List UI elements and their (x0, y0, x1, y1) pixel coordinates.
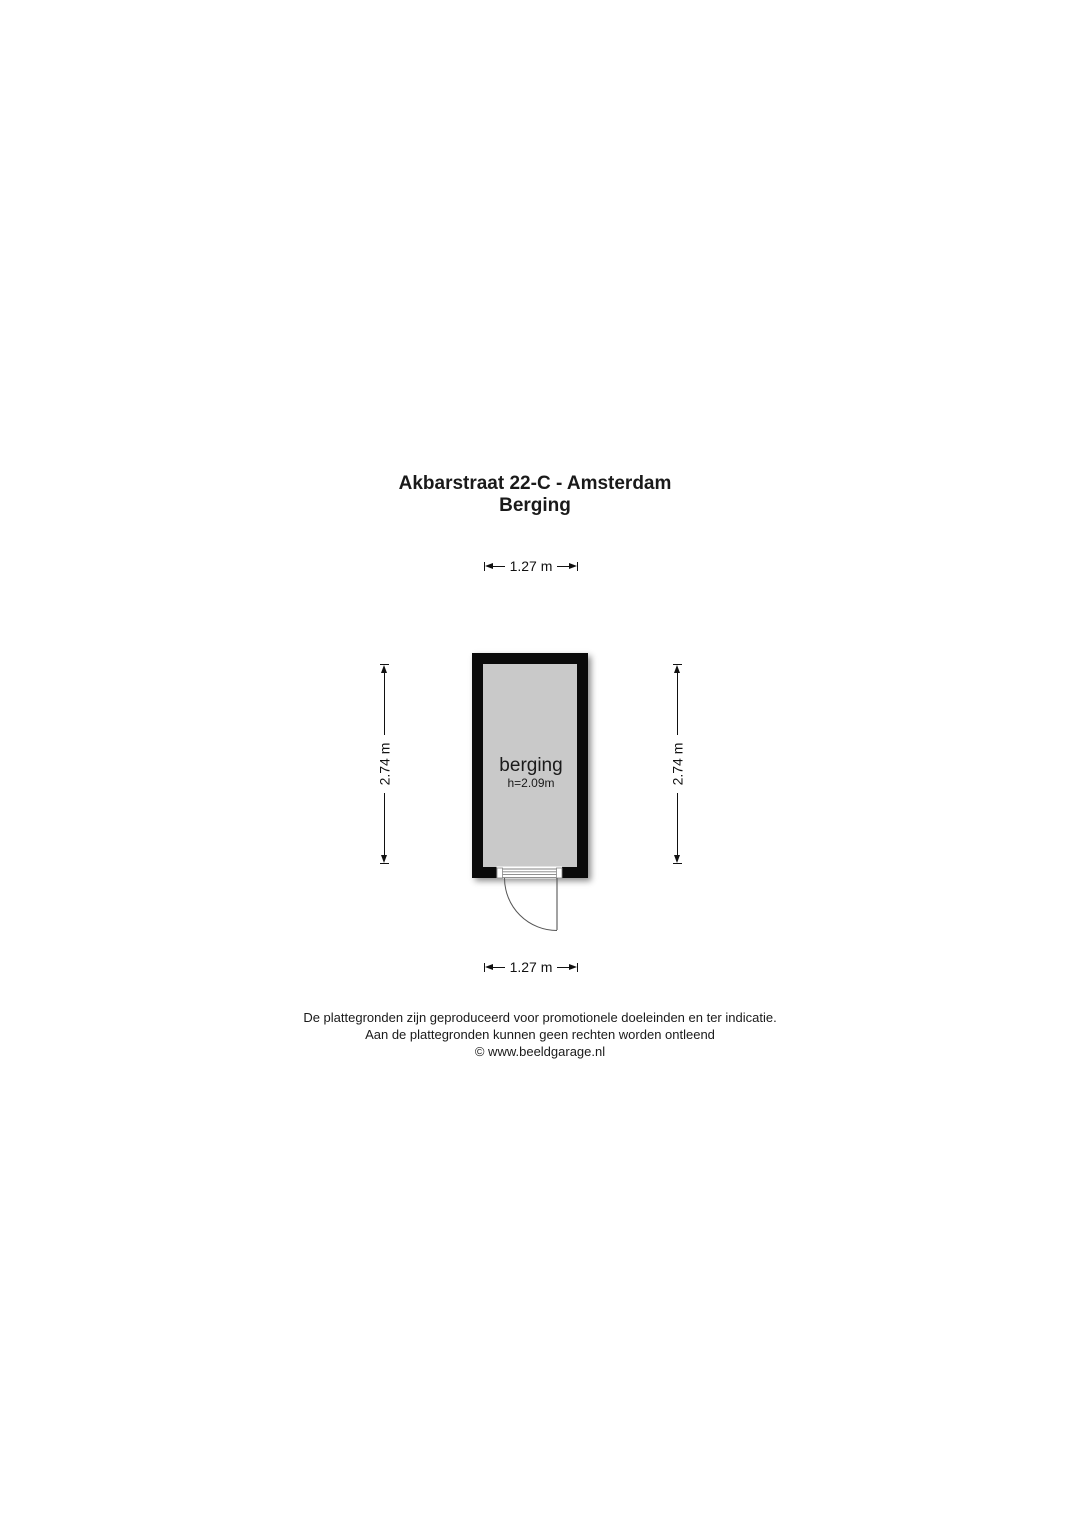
dimension-line (677, 673, 678, 735)
dimension-line (557, 566, 569, 567)
arrow-right-icon (569, 563, 577, 569)
dimension-width-bottom: 1.27 m (484, 960, 578, 974)
door-swing-arc (505, 878, 558, 931)
door-jamb-right (557, 868, 563, 878)
dimension-label-box: 2.74 m (377, 735, 391, 793)
dimension-label-box: 2.74 m (670, 735, 684, 793)
dimension-tick (577, 963, 578, 972)
dimension-height-right: 2.74 m (670, 664, 684, 864)
door (470, 860, 600, 938)
arrow-left-icon (485, 964, 493, 970)
dimension-line (493, 566, 505, 567)
room-ceiling-height-label: h=2.09m (499, 776, 562, 791)
dimension-label: 1.27 m (505, 959, 558, 975)
floorplan-page: Akbarstraat 22-C - Amsterdam Berging 1.2… (0, 0, 1080, 1527)
dimension-label: 2.74 m (376, 743, 392, 786)
disclaimer-line-2: Aan de plattegronden kunnen geen rechten… (303, 1026, 776, 1043)
dimension-line (384, 793, 385, 855)
arrow-right-icon (569, 964, 577, 970)
dimension-width-top: 1.27 m (484, 559, 578, 573)
room-label-block: berging h=2.09m (499, 755, 562, 791)
dimension-line (493, 967, 505, 968)
dimension-label: 1.27 m (505, 558, 558, 574)
dimension-label: 2.74 m (669, 743, 685, 786)
dimension-tick (577, 562, 578, 571)
dimension-line (557, 967, 569, 968)
room-name-label: berging (499, 755, 562, 776)
door-jamb-left (497, 868, 503, 878)
disclaimer-line-1: De plattegronden zijn geproduceerd voor … (303, 1009, 776, 1026)
arrow-down-icon (674, 855, 680, 863)
dimension-tick (673, 863, 682, 864)
dimension-tick (380, 863, 389, 864)
arrow-left-icon (485, 563, 493, 569)
copyright-line: © www.beeldgarage.nl (303, 1043, 776, 1060)
dimension-line (677, 793, 678, 855)
page-subtitle: Berging (399, 495, 672, 517)
title-block: Akbarstraat 22-C - Amsterdam Berging (399, 473, 672, 517)
arrow-up-icon (381, 665, 387, 673)
dimension-height-left: 2.74 m (377, 664, 391, 864)
door-opening (497, 867, 563, 879)
dimension-line (384, 673, 385, 735)
arrow-up-icon (674, 665, 680, 673)
footer-disclaimer: De plattegronden zijn geproduceerd voor … (303, 1009, 776, 1060)
arrow-down-icon (381, 855, 387, 863)
page-title: Akbarstraat 22-C - Amsterdam (399, 473, 672, 495)
